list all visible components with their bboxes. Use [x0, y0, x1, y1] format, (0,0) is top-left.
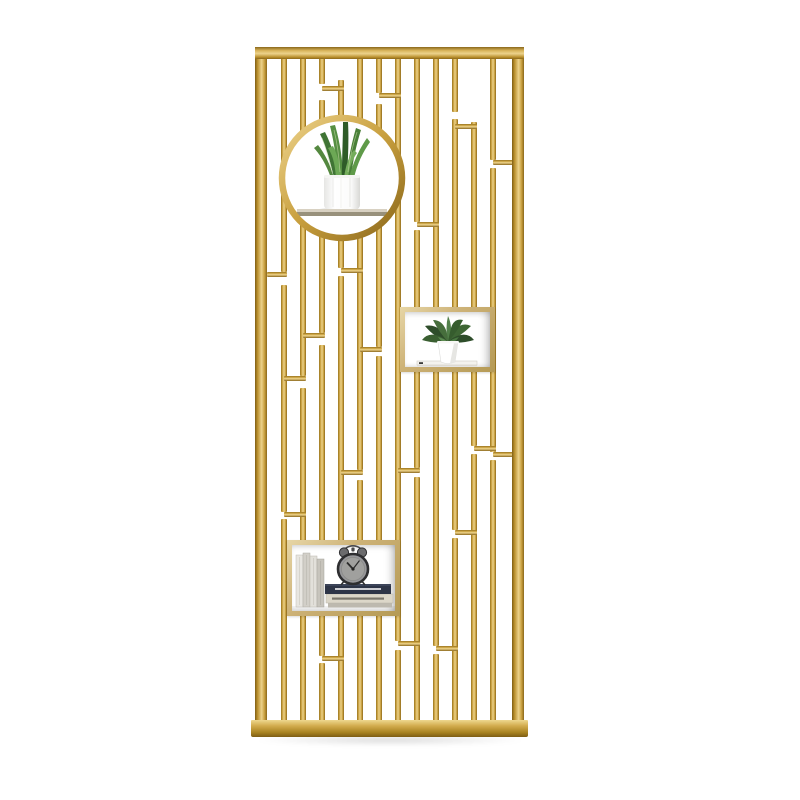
lower-box-interior: [292, 545, 395, 611]
slat-connector: [398, 468, 420, 473]
alarm-clock: [338, 546, 368, 585]
slat-connector: [267, 272, 287, 277]
slat-connector: [341, 268, 363, 273]
white-pot: [324, 175, 360, 209]
slat-connector: [455, 530, 477, 535]
circle-display-niche: [276, 112, 408, 244]
slat-bar: [376, 57, 382, 93]
middle-display-box: [400, 307, 495, 372]
slat-bar: [414, 57, 420, 222]
slat-connector: [303, 333, 325, 338]
slat-connector: [284, 512, 306, 517]
slat-connector: [341, 470, 363, 475]
lower-display-box: [287, 540, 400, 616]
slat-bar: [452, 57, 458, 112]
product-photo: [0, 0, 800, 800]
slat-connector: [398, 641, 420, 646]
slat-bar: [471, 122, 477, 446]
slat-bar: [414, 477, 420, 723]
slat-connector: [322, 656, 344, 661]
slat-bar: [319, 663, 325, 723]
slat-bar: [433, 654, 439, 723]
slat-connector: [322, 86, 344, 91]
slat-connector: [379, 93, 401, 98]
standing-books: [296, 553, 324, 607]
frame-left: [255, 47, 267, 735]
slat-connector: [455, 124, 477, 129]
slat-bar: [452, 538, 458, 723]
slat-connector: [436, 646, 458, 651]
slat-bar: [471, 454, 477, 723]
white-pot: [437, 341, 459, 364]
slat-bar: [490, 460, 496, 723]
slat-bar: [319, 57, 325, 84]
slat-bar: [490, 57, 496, 160]
stacked-books: [325, 584, 393, 608]
slat-bar: [281, 285, 287, 512]
lower-box-contents: [292, 545, 395, 611]
slat-connector: [284, 376, 306, 381]
slat-connector: [474, 446, 496, 451]
frame-bottom: [251, 720, 528, 737]
frame-right: [512, 47, 524, 735]
leafy-potted-plant: [405, 312, 490, 367]
middle-box-interior: [405, 312, 490, 367]
slat-connector: [360, 347, 382, 352]
slat-connector: [417, 222, 439, 227]
plant-leaves: [422, 316, 474, 344]
frame-top: [255, 47, 524, 59]
slat-bar: [395, 650, 401, 723]
